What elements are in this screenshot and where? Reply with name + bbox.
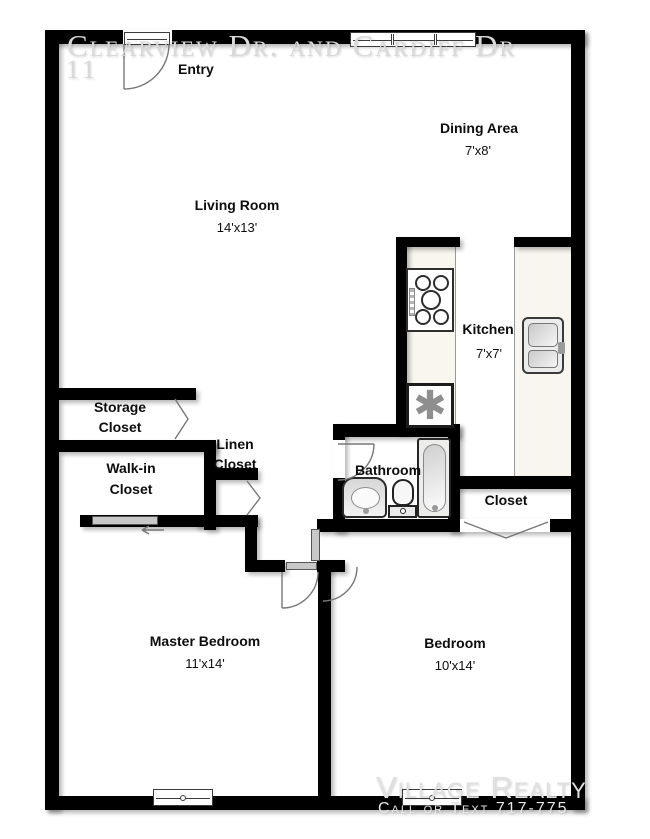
living-room-dims: 14'x13' bbox=[217, 220, 257, 235]
walkin-closet-label-2: Closet bbox=[110, 481, 153, 497]
kitchen-dims: 7'x7' bbox=[476, 346, 502, 361]
dining-area-dims: 7'x8' bbox=[465, 143, 491, 158]
storage-closet-label-1: Storage bbox=[94, 399, 146, 415]
kitchen-label: Kitchen bbox=[462, 321, 513, 337]
bedroom-label: Bedroom bbox=[424, 635, 485, 651]
bedroom-dims: 10'x14' bbox=[435, 658, 475, 673]
master-bedroom-label: Master Bedroom bbox=[150, 633, 260, 649]
linen-closet-bifold-icon bbox=[247, 481, 260, 515]
storage-closet-bifold-icon bbox=[175, 399, 188, 439]
door-swing-layer bbox=[0, 0, 650, 839]
floor-plan: ✱ E bbox=[0, 0, 650, 839]
living-room-label: Living Room bbox=[195, 197, 280, 213]
watermark-street-number: 11 bbox=[66, 55, 99, 85]
closet-bifold-icon bbox=[464, 522, 548, 538]
walkin-closet-label-1: Walk-in bbox=[106, 460, 155, 476]
watermark-realty-phone: Call or Text 717-775 bbox=[378, 800, 569, 818]
master-bedroom-dims: 11'x14' bbox=[185, 656, 224, 671]
closet-label: Closet bbox=[485, 492, 528, 508]
storage-closet-label-2: Closet bbox=[99, 419, 142, 435]
linen-closet-label-1: Linen bbox=[216, 436, 253, 452]
sliding-door-arrow-icon bbox=[142, 526, 164, 534]
master-door-arc bbox=[282, 572, 318, 608]
bedroom-door-arc bbox=[323, 567, 357, 601]
linen-closet-label-2: Closet bbox=[214, 456, 257, 472]
watermark-street-names: Clearview Dr. and Cardiff Dr bbox=[67, 28, 516, 64]
bathroom-label: Bathroom bbox=[355, 462, 421, 478]
dining-area-label: Dining Area bbox=[440, 120, 518, 136]
